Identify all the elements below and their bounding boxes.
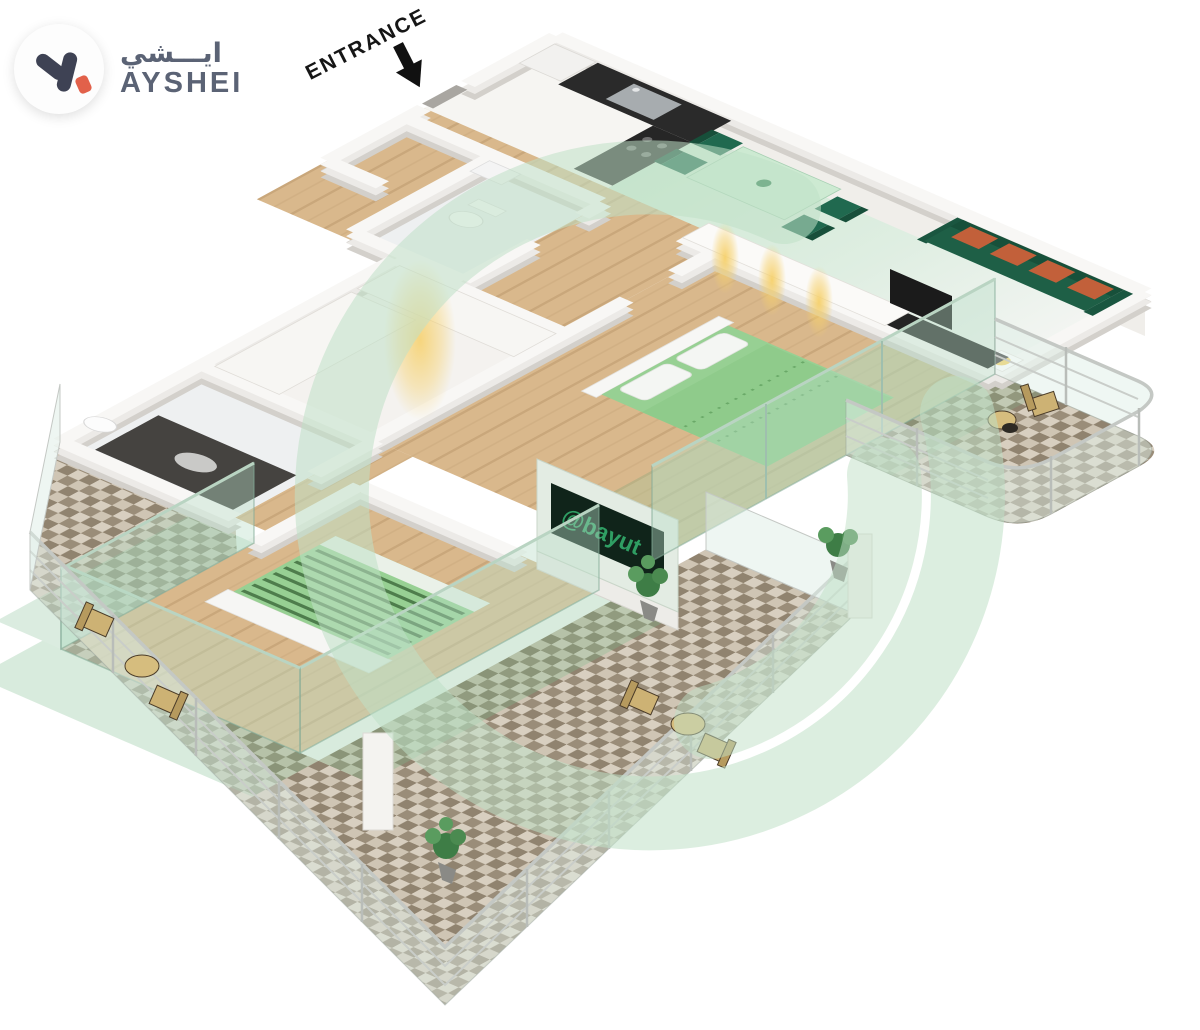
light-glow bbox=[758, 244, 786, 316]
pillar bbox=[363, 733, 393, 830]
light-glow bbox=[711, 222, 739, 294]
floorplan-svg: @bayut bbox=[0, 0, 1200, 1030]
ayshei-logo: ايـــشي AYSHEI bbox=[14, 24, 243, 114]
logo-arabic-name: ايـــشي bbox=[120, 40, 243, 68]
floorplan-image: ايـــشي AYSHEI ENTRANCE bbox=[0, 0, 1200, 1030]
ayshei-logo-icon bbox=[14, 24, 104, 114]
balcony-table bbox=[125, 655, 159, 677]
logo-latin-name: AYSHEI bbox=[120, 68, 243, 98]
logo-glyph-bar2-icon bbox=[55, 51, 78, 93]
table-decor bbox=[1002, 423, 1018, 433]
logo-text: ايـــشي AYSHEI bbox=[120, 40, 243, 99]
logo-price-tag-icon bbox=[74, 74, 93, 95]
light-glow bbox=[805, 266, 833, 338]
